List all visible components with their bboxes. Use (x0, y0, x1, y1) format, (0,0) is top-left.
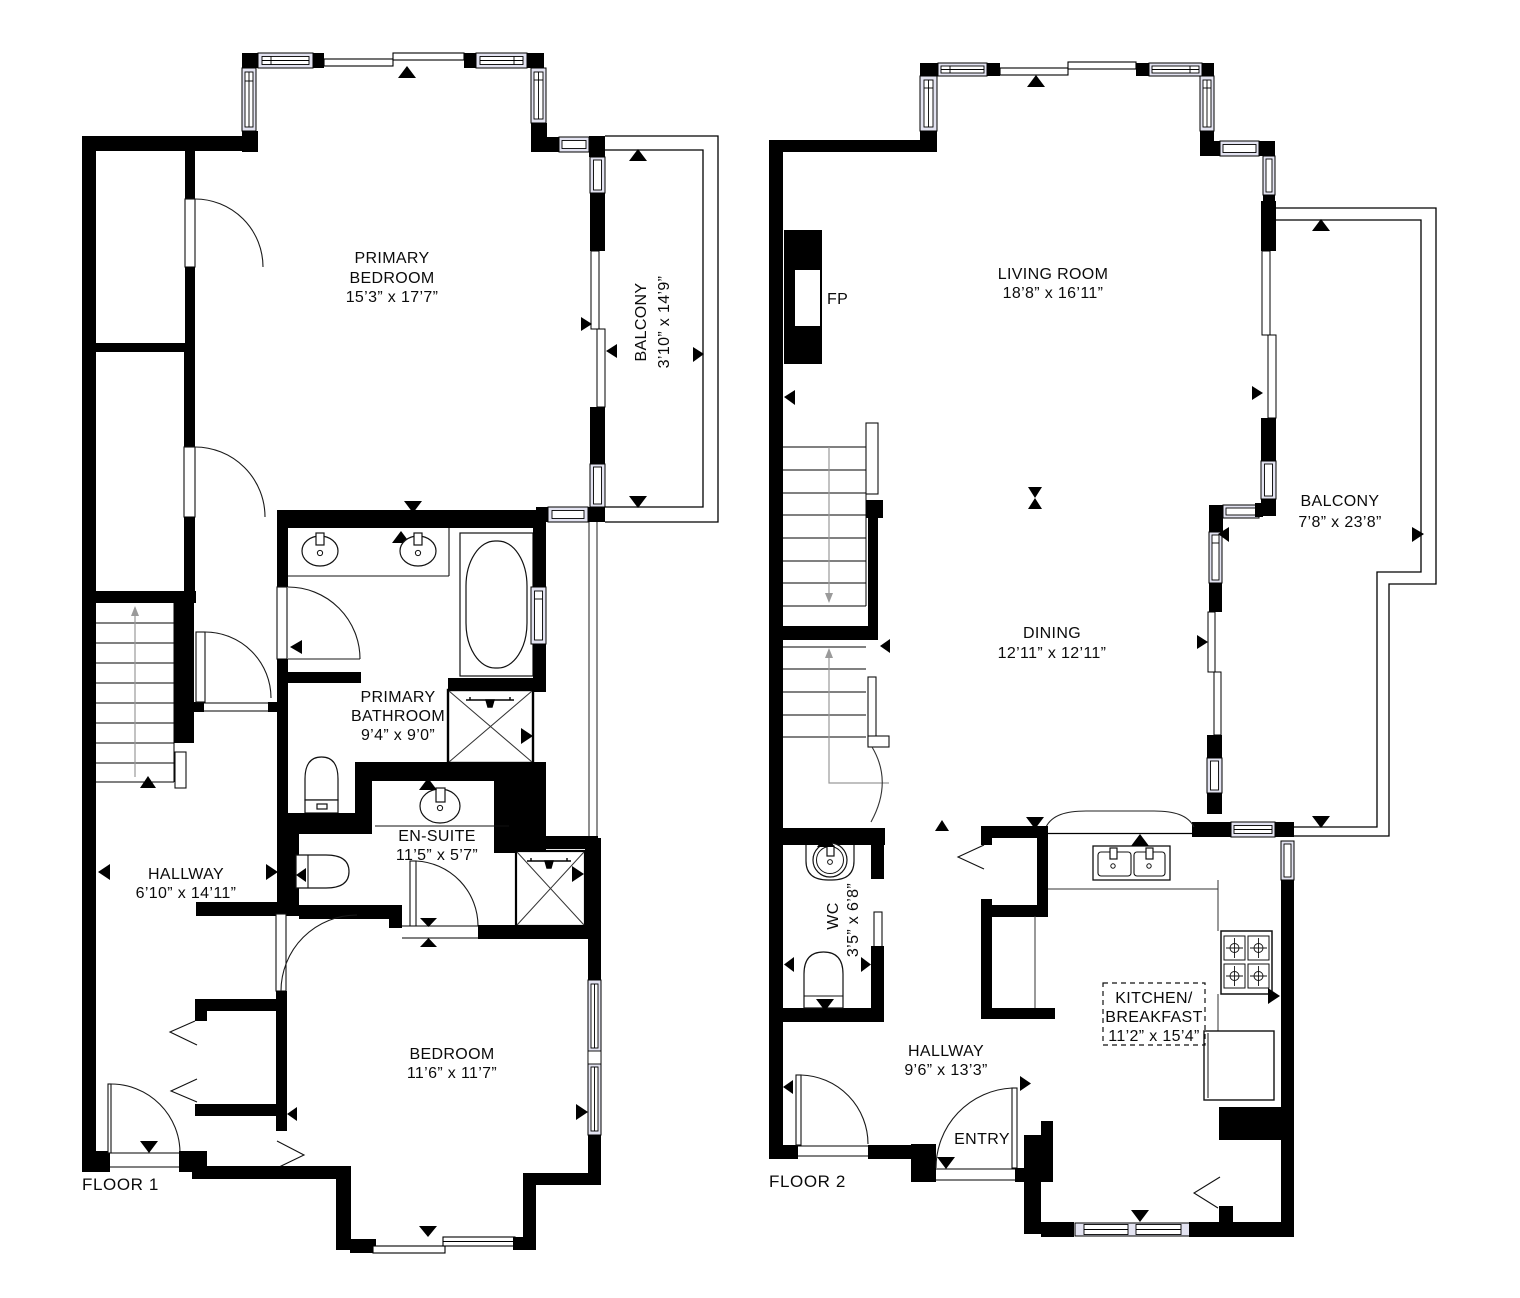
svg-text:BREAKFAST: BREAKFAST (1105, 1009, 1202, 1026)
svg-text:BEDROOM: BEDROOM (409, 1046, 494, 1063)
svg-text:KITCHEN/: KITCHEN/ (1115, 990, 1193, 1007)
svg-text:HALLWAY: HALLWAY (148, 866, 224, 883)
svg-text:FLOOR 1: FLOOR 1 (82, 1175, 159, 1194)
svg-text:FP: FP (827, 291, 848, 308)
svg-text:9’4” x 9’0”: 9’4” x 9’0” (361, 727, 435, 744)
svg-text:HALLWAY: HALLWAY (908, 1043, 984, 1060)
svg-text:11’2” x 15’4”: 11’2” x 15’4” (1108, 1028, 1199, 1045)
svg-text:BALCONY: BALCONY (633, 283, 650, 362)
svg-text:PRIMARY: PRIMARY (360, 689, 435, 706)
svg-text:3’5” x 6’8”: 3’5” x 6’8” (845, 883, 862, 957)
svg-text:11’5” x 5’7”: 11’5” x 5’7” (396, 847, 478, 864)
svg-text:DINING: DINING (1023, 625, 1081, 642)
svg-text:12’11” x 12’11”: 12’11” x 12’11” (998, 645, 1107, 662)
svg-text:18’8” x 16’11”: 18’8” x 16’11” (1003, 285, 1104, 302)
svg-text:15’3” x 17’7”: 15’3” x 17’7” (346, 289, 439, 306)
svg-text:7’8” x 23’8”: 7’8” x 23’8” (1298, 514, 1381, 531)
svg-text:BALCONY: BALCONY (1301, 493, 1380, 510)
svg-text:11’6” x 11’7”: 11’6” x 11’7” (407, 1065, 497, 1082)
svg-text:BEDROOM: BEDROOM (349, 270, 434, 287)
svg-text:6’10” x 14’11”: 6’10” x 14’11” (136, 885, 237, 902)
svg-text:9’6” x 13’3”: 9’6” x 13’3” (904, 1062, 987, 1079)
svg-text:PRIMARY: PRIMARY (354, 250, 429, 267)
svg-text:3’10” x 14’9”: 3’10” x 14’9” (656, 276, 673, 369)
svg-text:ENTRY: ENTRY (954, 1131, 1010, 1148)
svg-text:EN-SUITE: EN-SUITE (398, 828, 475, 845)
svg-text:BATHROOM: BATHROOM (351, 708, 445, 725)
svg-text:WC: WC (825, 902, 842, 929)
svg-text:LIVING ROOM: LIVING ROOM (998, 266, 1109, 283)
svg-text:FLOOR 2: FLOOR 2 (769, 1172, 846, 1191)
